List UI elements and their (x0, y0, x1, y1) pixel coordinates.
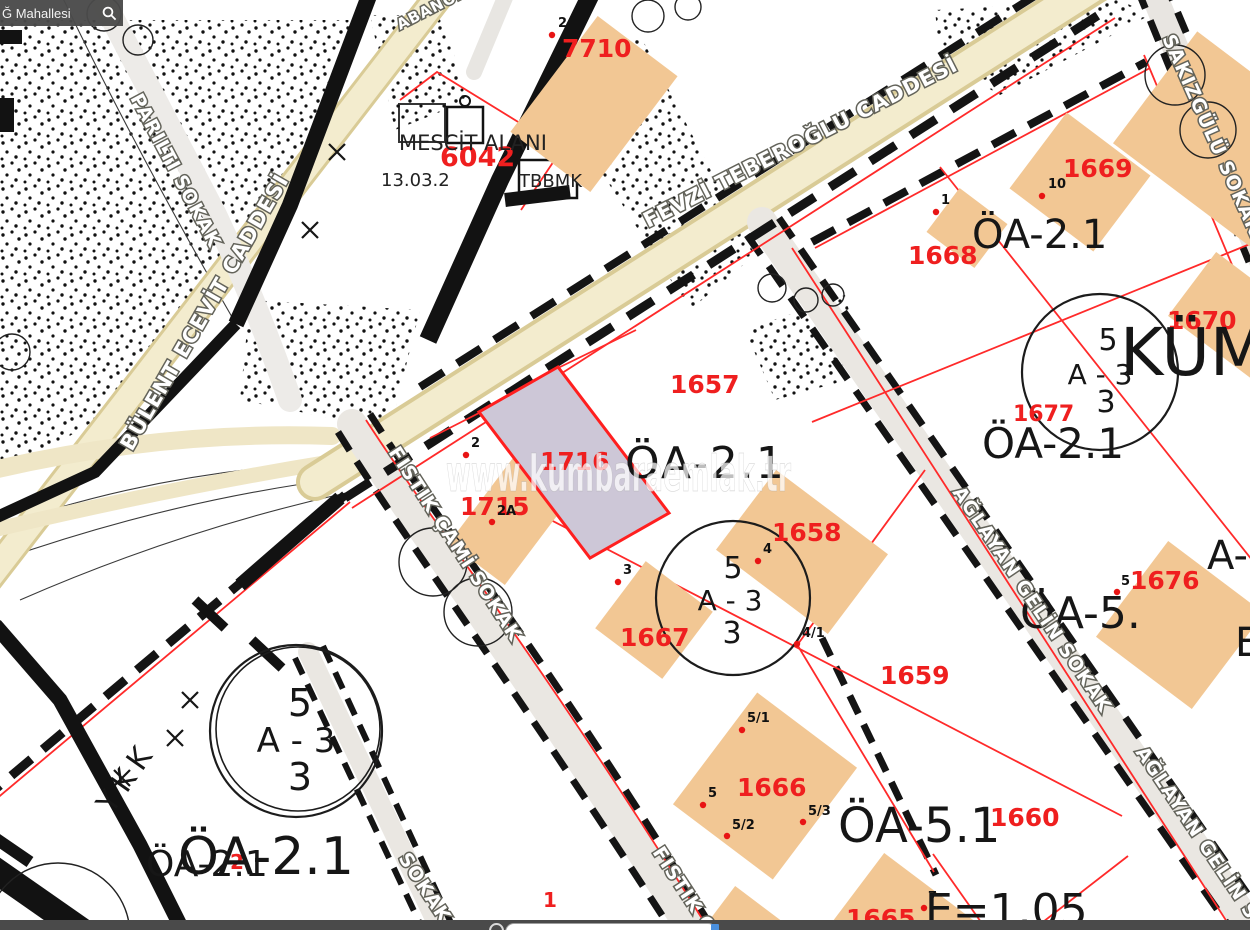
svg-text:5: 5 (1098, 323, 1117, 358)
svg-text:3: 3 (623, 563, 632, 578)
mescit-label: MESCİT ALANI (399, 130, 547, 155)
watermark: www.kumbaraemlak.tr (446, 445, 791, 503)
svg-text:3: 3 (722, 616, 741, 651)
svg-text:10: 10 (1048, 177, 1066, 192)
zone-oa21-topright: ÖA-2.1 (972, 210, 1107, 258)
zone-kum: KÜM (1120, 314, 1250, 391)
svg-text:5: 5 (1121, 574, 1130, 589)
street-aglayan-2: AĞLAYAN GELİN SOKAK (1131, 741, 1250, 930)
parcel-number: 1666 (737, 773, 807, 802)
building-1667 (595, 561, 713, 679)
svg-text:4: 4 (763, 542, 772, 557)
zone-code: 3 (288, 755, 312, 799)
svg-text:5/2: 5/2 (732, 818, 755, 833)
svg-text:5/3: 5/3 (808, 804, 831, 819)
road-stub (474, 0, 509, 72)
svg-text:5: 5 (723, 551, 742, 586)
cursor-accent (711, 924, 719, 930)
red-label-1: 1 (543, 888, 557, 912)
zone-oa21-bl-big: ÖA-2.1 (178, 826, 354, 887)
bottom-toolbar (0, 920, 1250, 930)
parcel-number: 1667 (620, 623, 690, 652)
agency-label: TBBMK (518, 171, 583, 192)
svg-text:1: 1 (941, 193, 950, 208)
zone-oa51-bottom: ÖA-5.1 (838, 798, 1000, 854)
svg-text:5/1: 5/1 (747, 711, 770, 726)
search-icon[interactable] (102, 6, 117, 21)
parcel-number: 1658 (772, 518, 842, 547)
parcel-number: 1657 (670, 370, 740, 399)
parcel-number: 1669 (1063, 154, 1133, 183)
search-icon[interactable] (489, 923, 504, 930)
map-canvas[interactable]: 5 A - 3 3 5 A - 3 3 5 A - 3 3 7710 6042 … (0, 0, 1250, 930)
zone-frag-a: A- (1207, 533, 1248, 579)
bottom-search-input[interactable] (505, 923, 717, 930)
parcel-number: 1668 (908, 241, 978, 270)
svg-text:3: 3 (1096, 385, 1115, 420)
parcel-number: 1659 (880, 661, 950, 690)
search-bar[interactable]: Ğ Mahallesi (0, 0, 123, 26)
parcel-number: 7710 (562, 34, 632, 63)
svg-text:2: 2 (558, 16, 567, 31)
svg-text:2A: 2A (497, 504, 516, 519)
svg-text:5: 5 (708, 786, 717, 801)
zone-frag-e: E (1235, 620, 1250, 666)
parcel-number: 1660 (990, 803, 1060, 832)
cadastral-map-page: 5 A - 3 3 5 A - 3 3 5 A - 3 3 7710 6042 … (0, 0, 1250, 930)
search-input[interactable]: Ğ Mahallesi (2, 6, 102, 21)
svg-text:A - 3: A - 3 (698, 584, 763, 617)
svg-text:4/1: 4/1 (802, 626, 825, 641)
zone-code: 5 (288, 681, 312, 725)
zone-oa21-right: ÖA-2.1 (982, 418, 1124, 468)
date-label: 13.03.2 (381, 170, 450, 191)
